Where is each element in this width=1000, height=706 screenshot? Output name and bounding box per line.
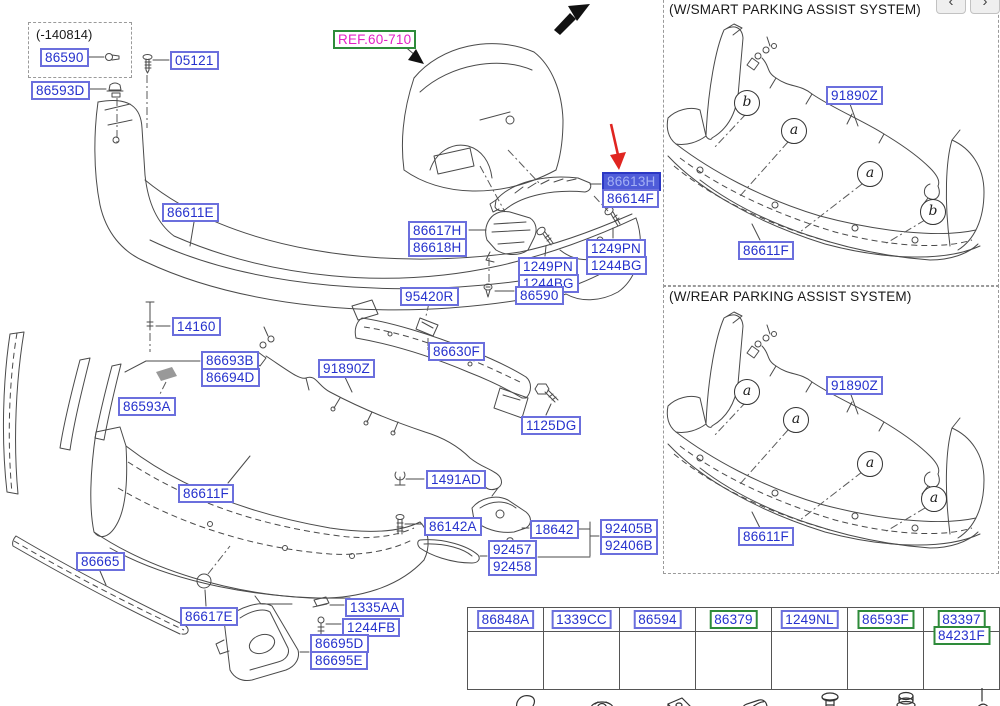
screw-86142A-icon [396, 515, 404, 535]
callout-a: a [783, 407, 809, 433]
part-label-86593d[interactable]: 86593D [31, 81, 90, 100]
clip-86593D-icon [107, 83, 123, 97]
part-label-18642[interactable]: 18642 [530, 520, 579, 539]
part-label-1125dg[interactable]: 1125DG [521, 416, 581, 435]
part-label-91890z[interactable]: 91890Z [826, 86, 883, 105]
fastener-column: 1249NL [771, 608, 847, 689]
part-label-86379[interactable]: 86379 [709, 610, 758, 629]
part-label-86617e[interactable]: 86617E [180, 607, 238, 626]
part-label-86614f[interactable]: 86614F [602, 189, 659, 208]
part-label-86142a[interactable]: 86142A [424, 517, 482, 536]
part-label-86611f[interactable]: 86611F [738, 527, 794, 546]
part-label-86695e[interactable]: 86695E [310, 651, 368, 670]
part-label-1491ad[interactable]: 1491AD [426, 470, 486, 489]
callout-a: a [734, 379, 760, 405]
lower-bumper-drawing [91, 427, 428, 604]
part-label-86665[interactable]: 86665 [76, 552, 125, 571]
part-label-ref.60-710[interactable]: REF.60-710 [333, 30, 416, 49]
screw-1249PN-left-icon [535, 226, 553, 245]
sensor-bracket-95420R-icon [416, 318, 438, 336]
part-label-92458[interactable]: 92458 [488, 557, 537, 576]
part-label-1249nl[interactable]: 1249NL [780, 610, 839, 629]
bolt-1125DG-icon [535, 384, 558, 402]
callout-a: a [857, 451, 883, 477]
callout-a: a [781, 118, 807, 144]
part-label-1339cc[interactable]: 1339CC [551, 610, 612, 629]
part-label-86611e[interactable]: 86611E [162, 203, 219, 222]
callout-b: b [920, 199, 946, 225]
side-bracket-drawing [60, 358, 121, 450]
side-strip-left-drawing [3, 332, 24, 494]
part-label-91890z[interactable]: 91890Z [318, 359, 375, 378]
fastener-column: 86379 [695, 608, 771, 689]
fr-direction-label: FR. [592, 0, 621, 5]
note-box-text: (-140814) [36, 27, 92, 42]
part-label-1335aa[interactable]: 1335AA [345, 598, 404, 617]
part-label-86611f[interactable]: 86611F [738, 241, 794, 260]
part-label-86630f[interactable]: 86630F [428, 342, 485, 361]
part-label-86593a[interactable]: 86593A [118, 397, 176, 416]
pin-86590-icon [484, 284, 492, 297]
part-label-05121[interactable]: 05121 [170, 51, 219, 70]
clip-1491AD-icon [395, 472, 405, 485]
callout-a: a [857, 161, 883, 187]
fastener-column: 86848A [468, 608, 543, 689]
part-label-86848a[interactable]: 86848A [477, 610, 535, 629]
rear-parking-panel-box [663, 285, 999, 574]
part-label-92406b[interactable]: 92406B [600, 536, 658, 555]
callout-a: a [921, 486, 947, 512]
part-label-86618h[interactable]: 86618H [408, 238, 467, 257]
next-page-button[interactable]: › [970, 0, 1000, 14]
part-label-86594[interactable]: 86594 [633, 610, 682, 629]
prev-page-button[interactable]: ‹ [936, 0, 966, 14]
pad-86593A-icon [156, 367, 177, 381]
callout-b: b [734, 90, 760, 116]
quarter-panel-drawing [402, 44, 563, 191]
part-label-14160[interactable]: 14160 [172, 317, 221, 336]
parts-diagram-page: (-140814) (W/SMART PARKING ASSIST SYSTEM… [0, 0, 1000, 706]
part-label-95420r[interactable]: 95420R [400, 287, 459, 306]
retainer-bracket-drawing [486, 211, 536, 262]
screw-05121-icon [143, 55, 152, 74]
rear-parking-panel-title: (W/REAR PARKING ASSIST SYSTEM) [669, 289, 912, 304]
side-rail-drawing [490, 177, 591, 212]
lower-molding-drawing [13, 536, 188, 634]
part-label-86611f[interactable]: 86611F [178, 484, 234, 503]
screw-14160-icon [146, 302, 154, 330]
fastener-column: 8339784231F [923, 608, 999, 689]
pointer-arrow-icon [610, 152, 626, 170]
part-label-86694d[interactable]: 86694D [201, 368, 260, 387]
fastener-table: 86848A1339CC86594863791249NL86593F833978… [467, 607, 1000, 690]
part-label-86593f[interactable]: 86593F [857, 610, 914, 629]
part-label-84231f[interactable]: 84231F [933, 626, 990, 645]
part-label-91890z[interactable]: 91890Z [826, 376, 883, 395]
fastener-column: 86594 [619, 608, 695, 689]
part-label-86590[interactable]: 86590 [515, 286, 564, 305]
fastener-column: 1339CC [543, 608, 619, 689]
smart-parking-panel-title: (W/SMART PARKING ASSIST SYSTEM) [669, 2, 921, 17]
part-label-1244bg[interactable]: 1244BG [586, 256, 647, 275]
smart-parking-panel-box [663, 0, 999, 287]
fastener-column: 86593F [847, 608, 923, 689]
part-label-86590[interactable]: 86590 [40, 48, 89, 67]
